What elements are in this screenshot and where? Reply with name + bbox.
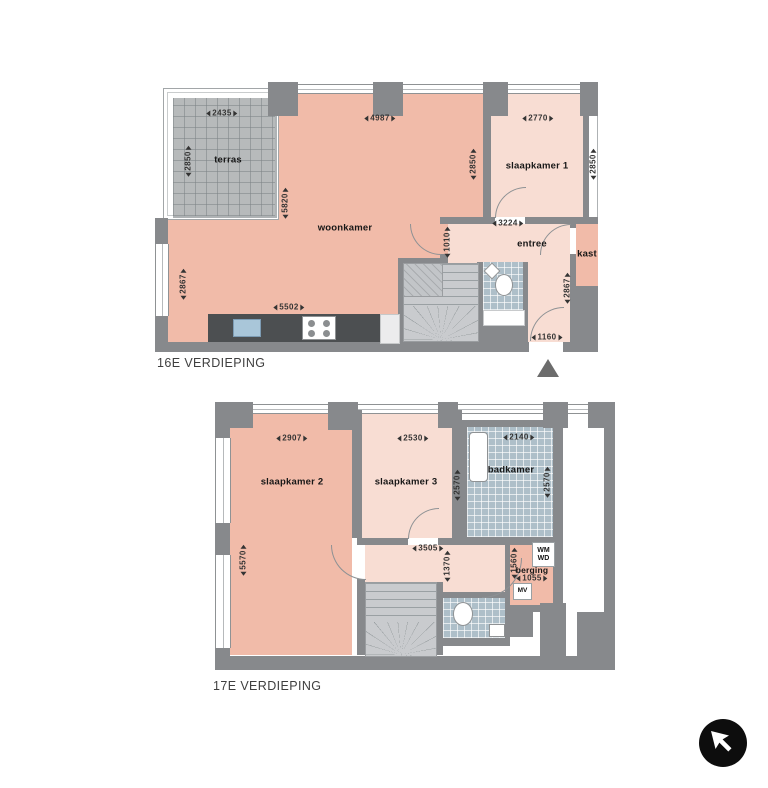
shaft-block	[577, 612, 604, 658]
dim-woonkamer-width: 4987	[364, 114, 395, 123]
dim-value: 2530	[403, 434, 422, 443]
dim-value: 4987	[370, 114, 389, 123]
wall-below-kast	[570, 286, 598, 342]
floor-label-16e: 16E VERDIEPING	[157, 356, 265, 370]
dim-badkamer-height: 2570	[543, 466, 552, 497]
dim-value: 2867	[563, 278, 572, 297]
window	[253, 404, 328, 414]
dim-value: 3505	[418, 544, 437, 553]
dim-value: 2907	[282, 434, 301, 443]
dim-arrow-left-icon	[276, 435, 280, 441]
dim-value: 2435	[212, 109, 231, 118]
dim-arrow-left-icon	[444, 254, 450, 258]
stove-icon	[302, 316, 336, 340]
dim-arrow-right-icon	[301, 304, 305, 310]
window	[403, 84, 483, 94]
dim-arrow-right-icon	[590, 148, 596, 152]
dim-arrow-left-icon	[532, 334, 536, 340]
dim-arrow-right-icon	[564, 272, 570, 276]
north-arrow-logo-icon	[698, 718, 748, 768]
mv-label: MV	[518, 588, 528, 595]
dim-arrow-left-icon	[180, 296, 186, 300]
dim-arrow-right-icon	[180, 268, 186, 272]
dim-value: 2570	[543, 472, 552, 491]
wall-slaapkamer1-left	[483, 92, 491, 217]
wall-wc-right	[523, 262, 528, 342]
dim-arrow-left-icon	[444, 578, 450, 582]
wall-left-block	[215, 523, 230, 555]
dim-slaapkamer1-left-height: 2850	[469, 148, 478, 179]
door-gap	[529, 342, 563, 352]
bathtub-icon	[469, 432, 488, 482]
dim-slaapkamer3-height: 2570	[453, 469, 462, 500]
hand-basin-icon	[489, 624, 505, 637]
dim-slaapkamer1-width: 2770	[522, 114, 553, 123]
window	[215, 555, 231, 648]
dim-arrow-right-icon	[304, 435, 308, 441]
dim-arrow-right-icon	[544, 466, 550, 470]
dim-arrow-right-icon	[511, 547, 517, 551]
dim-value: 1370	[443, 556, 452, 575]
dim-arrow-left-icon	[544, 494, 550, 498]
dim-arrow-left-icon	[240, 572, 246, 576]
dim-value: 2867	[179, 274, 188, 293]
dim-arrow-left-icon	[516, 575, 520, 581]
dryer-label: WD	[538, 555, 550, 562]
wall-pillar	[268, 82, 298, 116]
window	[155, 244, 169, 316]
dim-arrow-right-icon	[444, 550, 450, 554]
dim-entree-left-height: 1010	[443, 226, 452, 257]
dim-arrow-right-icon	[282, 187, 288, 191]
dim-arrow-left-icon	[412, 545, 416, 551]
wall-bottom	[215, 656, 615, 670]
dim-arrow-left-icon	[522, 115, 526, 121]
window	[298, 84, 373, 94]
dim-arrow-right-icon	[531, 434, 535, 440]
stair-vestibule	[403, 263, 443, 297]
dim-entry-width: 1160	[532, 333, 563, 342]
dim-kitchen-width: 5502	[273, 303, 304, 312]
window	[358, 404, 438, 414]
dim-arrow-right-icon	[544, 575, 548, 581]
dim-value: 5570	[239, 550, 248, 569]
dim-arrow-left-icon	[470, 176, 476, 180]
terrace-glass-front	[173, 216, 277, 218]
room-label-terras: terras	[214, 155, 242, 166]
washer-dryer-box: WM WD	[532, 542, 555, 567]
staircase	[365, 582, 437, 657]
room-label-slaapkamer-3: slaapkamer 3	[375, 477, 438, 488]
dim-arrow-right-icon	[470, 148, 476, 152]
wall-wc-bottom	[483, 324, 523, 342]
shaft-block	[540, 603, 566, 656]
logo	[698, 718, 748, 768]
dim-entree-right-height: 2867	[563, 272, 572, 303]
dim-arrow-left-icon	[503, 434, 507, 440]
dim-hal-width: 3505	[412, 544, 443, 553]
dim-arrow-left-icon	[206, 110, 210, 116]
room-label-woonkamer: woonkamer	[318, 223, 373, 234]
dim-value: 3224	[498, 219, 517, 228]
dim-arrow-right-icon	[185, 145, 191, 149]
dim-value: 2140	[509, 433, 528, 442]
dim-badkamer-width: 2140	[503, 433, 534, 442]
window	[458, 404, 543, 414]
dim-arrow-right-icon	[444, 226, 450, 230]
dim-value: 2850	[184, 151, 193, 170]
wall-berging-right	[553, 420, 563, 612]
dim-arrow-right-icon	[240, 544, 246, 548]
shower-tray	[483, 310, 525, 326]
room-slaapkamer-2	[230, 410, 352, 655]
stair-winder-steps	[366, 622, 436, 656]
wall-right	[604, 402, 615, 670]
entrance-triangle-icon	[537, 359, 559, 377]
room-label-entree: entree	[517, 239, 547, 250]
room-label-berging: berging	[516, 565, 549, 575]
wall-left-block	[215, 402, 230, 438]
dim-arrow-left-icon	[590, 176, 596, 180]
washer-label: WM	[537, 547, 549, 554]
toilet-icon	[495, 274, 513, 296]
dim-arrow-left-icon	[397, 435, 401, 441]
dim-arrow-left-icon	[282, 215, 288, 219]
dim-arrow-right-icon	[520, 220, 524, 226]
dim-hal-height: 1370	[443, 550, 452, 581]
dim-arrow-right-icon	[425, 435, 429, 441]
kitchen-cabinet	[380, 314, 400, 344]
dim-arrow-left-icon	[492, 220, 496, 226]
dim-arrow-right-icon	[558, 334, 562, 340]
dim-value: 1160	[538, 333, 557, 342]
dim-terras-height: 2850	[184, 145, 193, 176]
floorplan-17e: WM WD MV 2907 5570 2530 2570 2140 2570 3…	[210, 396, 616, 676]
wall-toilet-bottom	[443, 638, 510, 646]
wall-sl2-sl3	[352, 410, 362, 538]
floor-label-17e: 17E VERDIEPING	[213, 679, 321, 693]
dim-arrow-left-icon	[454, 497, 460, 501]
dim-arrow-left-icon	[273, 304, 277, 310]
dim-arrow-right-icon	[454, 469, 460, 473]
dim-value: 1010	[443, 232, 452, 251]
shaft-block	[510, 605, 533, 637]
window	[568, 404, 588, 414]
dim-arrow-right-icon	[550, 115, 554, 121]
kitchen-sink-icon	[233, 319, 261, 337]
dim-arrow-left-icon	[185, 173, 191, 177]
room-label-slaapkamer-1: slaapkamer 1	[506, 161, 569, 172]
wall-pillar	[373, 82, 403, 116]
wall-badkamer-left	[462, 420, 467, 538]
dim-slaapkamer2-height: 5570	[239, 544, 248, 575]
dim-value: 2850	[589, 154, 598, 173]
room-label-kast: kast	[577, 249, 597, 260]
stair-winder-steps	[404, 306, 478, 341]
dim-slaapkamer1-right-height: 2850	[589, 148, 598, 179]
dim-woonkamer-glass-height: 5820	[281, 187, 290, 218]
room-label-badkamer: badkamer	[488, 465, 534, 476]
toilet-icon	[453, 602, 473, 626]
dim-arrow-right-icon	[392, 115, 396, 121]
dim-terras-width: 2435	[206, 109, 237, 118]
floorplan-page: { "colors": { "room_salmon": "#f1bba9", …	[0, 0, 768, 788]
wall-badkamer-top	[457, 420, 553, 427]
window	[508, 84, 580, 94]
dim-entree-width: 3224	[492, 219, 523, 228]
mechanical-ventilation-box: MV	[513, 583, 532, 600]
dim-value: 5820	[281, 193, 290, 212]
room-label-slaapkamer-2: slaapkamer 2	[261, 477, 324, 488]
stair-steps	[366, 583, 436, 622]
dim-value: 2570	[453, 475, 462, 494]
dim-woonkamer-left-height: 2867	[179, 268, 188, 299]
dim-slaapkamer2-width: 2907	[276, 434, 307, 443]
wall-left-block	[155, 218, 168, 244]
dim-value: 5502	[279, 303, 298, 312]
dim-arrow-left-icon	[564, 300, 570, 304]
stove-burners-icon	[305, 319, 333, 337]
dim-slaapkamer3-width: 2530	[397, 434, 428, 443]
floorplan-16e: 2435 2850 4987 2770 2850 2850 5820 2867 …	[155, 76, 615, 356]
window	[215, 438, 231, 523]
dim-value: 2850	[469, 154, 478, 173]
dim-arrow-left-icon	[364, 115, 368, 121]
terrace-glass-divider	[275, 98, 277, 218]
dim-arrow-right-icon	[234, 110, 238, 116]
dim-value: 2770	[528, 114, 547, 123]
